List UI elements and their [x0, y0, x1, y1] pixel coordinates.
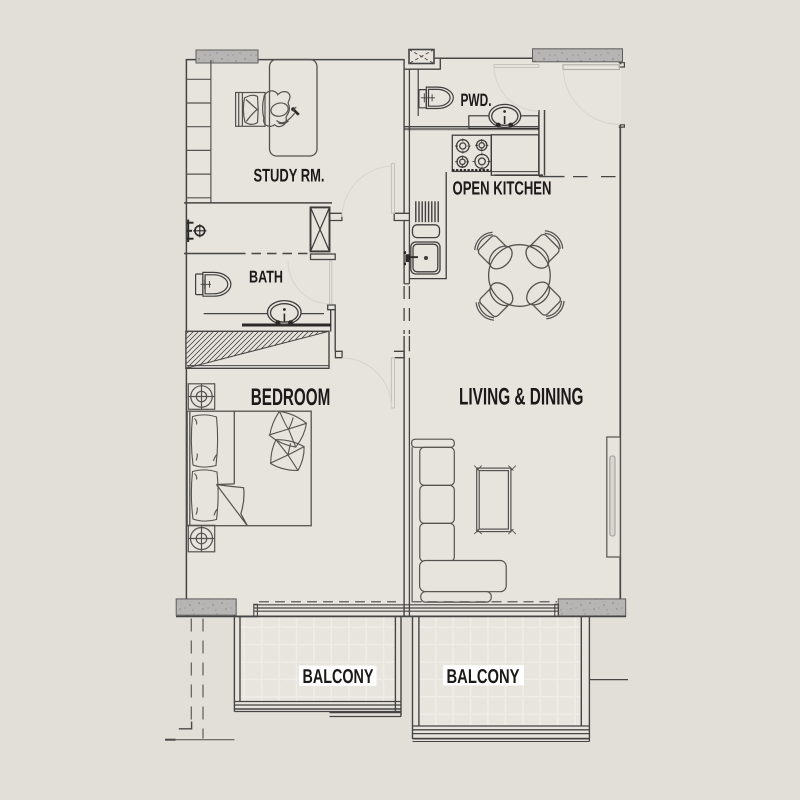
svg-text:BALCONY: BALCONY: [303, 666, 374, 688]
svg-text:PWD.: PWD.: [461, 90, 492, 110]
svg-text:BEDROOM: BEDROOM: [251, 384, 330, 411]
svg-text:STUDY RM.: STUDY RM.: [254, 164, 325, 185]
svg-text:LIVING & DINING: LIVING & DINING: [459, 384, 584, 411]
svg-text:BALCONY: BALCONY: [447, 666, 520, 688]
svg-text:OPEN KITCHEN: OPEN KITCHEN: [453, 179, 552, 200]
svg-text:BATH: BATH: [249, 268, 283, 287]
